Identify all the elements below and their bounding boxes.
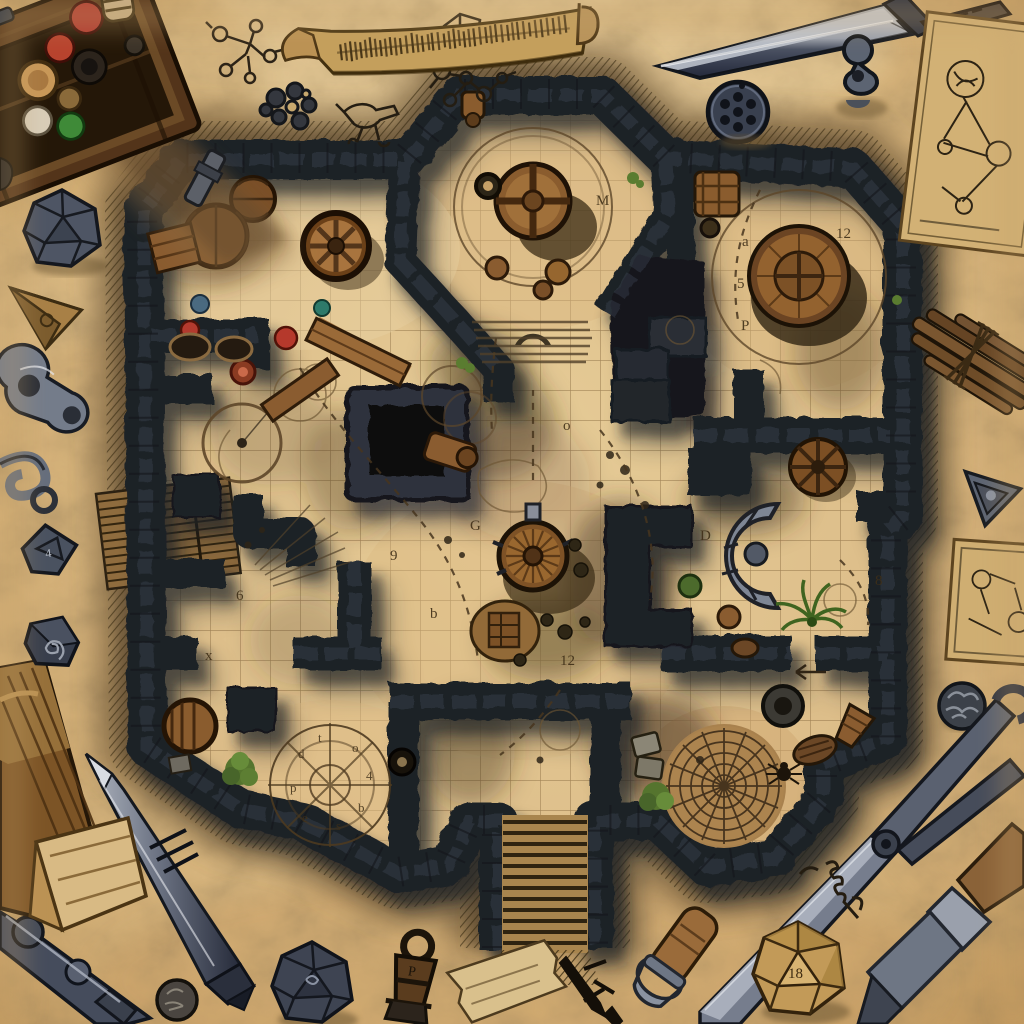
svg-text:12: 12: [836, 226, 851, 242]
svg-text:o: o: [563, 418, 571, 434]
svg-text:b: b: [430, 606, 438, 622]
svg-text:M: M: [596, 193, 609, 209]
svg-text:6: 6: [236, 588, 244, 604]
svg-text:9: 9: [390, 548, 398, 564]
svg-text:a: a: [742, 234, 749, 250]
svg-text:D: D: [700, 528, 711, 544]
svg-text:4: 4: [366, 768, 373, 783]
svg-text:s: s: [336, 818, 341, 833]
svg-text:t: t: [318, 730, 322, 745]
svg-text:b: b: [358, 800, 365, 815]
svg-text:12: 12: [560, 653, 575, 669]
svg-text:18: 18: [788, 966, 803, 982]
svg-text:e: e: [302, 810, 308, 825]
svg-text:x: x: [205, 648, 213, 664]
svg-text:p: p: [290, 780, 297, 795]
svg-text:o: o: [352, 740, 359, 755]
svg-text:P: P: [741, 318, 749, 334]
svg-text:G: G: [470, 518, 481, 534]
svg-text:8: 8: [875, 573, 883, 589]
svg-text:d: d: [298, 746, 305, 761]
svg-text:5: 5: [737, 276, 745, 292]
